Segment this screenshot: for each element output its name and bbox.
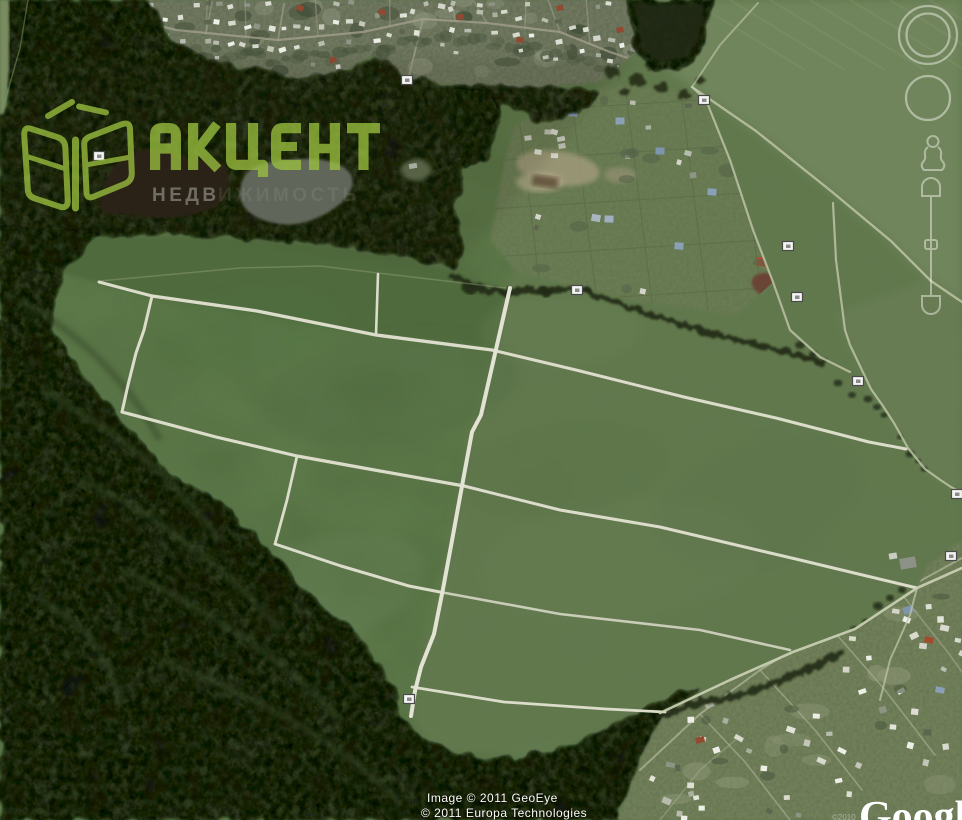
svg-text:Image © 2011 GeoEye: Image © 2011 GeoEye: [427, 791, 558, 805]
svg-text:НЕДВ: НЕДВ: [152, 185, 220, 206]
svg-text:© 2011 Europa Technologies: © 2011 Europa Technologies: [421, 806, 587, 820]
svg-text:ИЖИМОСТЬ: ИЖИМОСТЬ: [218, 185, 360, 206]
svg-text:Google: Google: [859, 794, 962, 820]
svg-text:©2010: ©2010: [832, 813, 856, 820]
